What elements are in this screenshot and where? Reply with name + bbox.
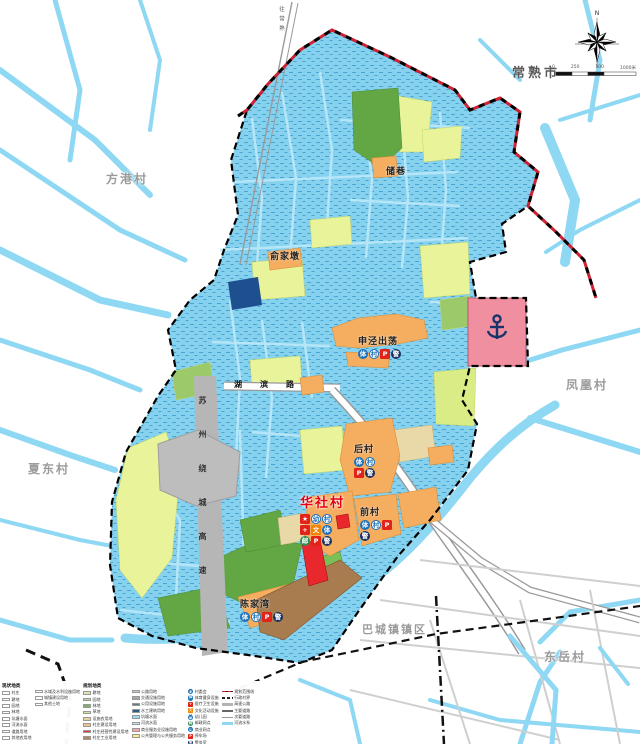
legend-item: 商商业网点 <box>188 727 219 732</box>
legend-item: 水域及水利设施用地 <box>35 689 81 694</box>
legend-item: 其他土地 <box>35 702 81 707</box>
poi-badge: 邮 <box>300 536 310 546</box>
road-label-local: 湖滨路 <box>234 379 312 390</box>
legend-swatch <box>2 704 10 708</box>
legend-item: 商业服务业设施用地 <box>132 727 186 732</box>
road-label-to-changshu: 往常熟 <box>277 6 285 35</box>
legend-current-col: 现状地类 村庄耕地园地林地坑塘水面河流水面道路用地其他农用地 <box>2 683 32 742</box>
poi-badge: 幼 <box>311 514 321 524</box>
hamlet-shenjingchudang: 申泾出荡 体村P警 <box>358 334 401 359</box>
legend-item: 村庄 <box>2 691 32 696</box>
poi-badges: 体村P警 <box>358 349 401 359</box>
legend-swatch <box>83 698 91 702</box>
poi-badge: + <box>300 525 310 535</box>
legend-item: 村庄建设用地 <box>83 723 129 728</box>
poi-badge: 文 <box>311 525 321 535</box>
legend-item: 公用设施用地 <box>132 702 186 707</box>
poi-badge: 村 <box>322 514 332 524</box>
legend-item: 文文化活动设施 <box>188 708 219 713</box>
legend-line-sample <box>222 703 233 706</box>
legend-panel: 现状地类 村庄耕地园地林地坑塘水面河流水面道路用地其他农用地 水域及水利设施用地… <box>0 681 276 744</box>
legend-line-items: 规划范围线行政村界高速公路主要道路次要道路河流水系 <box>222 683 255 742</box>
legend-item: 体体育健身设施 <box>188 695 219 700</box>
poi-badges: 体村P警 <box>354 457 377 478</box>
legend-swatch <box>132 703 140 707</box>
legend-planned-items: 耕地园地林地草地设施农用地村庄建设用地村庄经营性建设用地村庄工业用地 <box>83 691 129 741</box>
hamlet-chenjiawan: 陈家湾 体村P警 <box>240 597 283 622</box>
legend-item: 幼幼儿园 <box>188 715 219 720</box>
legend-item: 河流水面 <box>132 721 186 726</box>
poi-badges: 体村P警 <box>360 520 394 541</box>
legend-facility-icon: 商 <box>188 727 193 732</box>
poi-badge: P <box>262 612 272 622</box>
legend-facility-icon: 幼 <box>188 715 193 720</box>
legend-current-items: 村庄耕地园地林地坑塘水面河流水面道路用地其他农用地 <box>2 691 32 741</box>
poi-badge: 体 <box>358 349 368 359</box>
legend-swatch <box>2 698 10 702</box>
poi-badge: 村 <box>365 457 375 467</box>
legend-item: 行政村界 <box>222 695 255 700</box>
legend-swatch <box>132 709 140 713</box>
main-village-badges: ★幼村+文体邮P警 <box>300 514 335 546</box>
legend-item: 道路用地 <box>2 729 32 734</box>
poi-badge: 体 <box>360 520 370 530</box>
map-canvas: N 常熟市 02505001000米 方港村 夏东村 凤凰村 东岳村 巴城镇镇区… <box>0 0 640 744</box>
scale-tick-labels: 02505001000米 <box>552 65 636 71</box>
legend-swatch <box>2 730 10 734</box>
legend-swatch <box>83 711 91 715</box>
legend-facility-icon: 邮 <box>188 721 193 726</box>
legend-swatch <box>132 696 140 700</box>
legend-item: 公共管理与公共服务用地 <box>132 734 186 739</box>
scale-bar <box>556 72 636 76</box>
legend-facility-icon: 文 <box>188 708 193 713</box>
legend-swatch <box>83 717 91 721</box>
scale-tick: 0 <box>552 65 555 71</box>
legend-item: 林地 <box>2 710 32 715</box>
legend-item: 坑塘水面 <box>2 716 32 721</box>
poi-badge: 村 <box>371 520 381 530</box>
poi-badge: 警 <box>391 349 401 359</box>
legend-facility-icon: 体 <box>188 695 193 700</box>
legend-facility-icon: + <box>188 702 193 707</box>
legend-item: 水工建筑用地 <box>132 708 186 713</box>
legend-line-sample <box>222 697 233 698</box>
legend-item: 坑塘水面 <box>132 715 186 720</box>
legend-swatch <box>2 711 10 715</box>
poi-badge: P <box>380 349 390 359</box>
legend-line-sample <box>222 691 233 693</box>
legend-swatch <box>35 703 43 707</box>
neighbor-label-fenghuang: 凤凰村 <box>566 376 608 393</box>
legend-swatch <box>83 723 91 727</box>
poi-badge: P <box>311 536 321 546</box>
poi-badge: 村 <box>369 349 379 359</box>
legend-item: +医疗卫生设施 <box>188 702 219 707</box>
road-label-expressway: 苏州绕城高速 <box>197 396 208 600</box>
hamlet-houcun: 后村 体村P警 <box>354 442 377 478</box>
poi-badge: 体 <box>240 612 250 622</box>
legend-item: 村庄经营性建设用地 <box>83 729 129 734</box>
legend-swatch <box>83 704 91 708</box>
legend-swatch <box>2 717 10 721</box>
legend-swatch <box>132 690 140 694</box>
legend-item: P停车场 <box>188 734 219 739</box>
legend-item: 邮邮政网点 <box>188 721 219 726</box>
legend-planned-title: 规划地类 <box>83 683 129 689</box>
poi-badge: 体 <box>354 457 364 467</box>
legend-line-sample <box>222 710 233 712</box>
legend-line-sample <box>222 722 233 724</box>
legend-item: 林地 <box>83 703 129 708</box>
legend-item: 耕地 <box>2 697 32 702</box>
utility-block <box>228 277 262 310</box>
poi-badge: P <box>354 468 364 478</box>
legend-item: 设施农用地 <box>83 716 129 721</box>
legend-item: 园地 <box>2 703 32 708</box>
legend-item: 村庄工业用地 <box>83 735 129 740</box>
legend-line-sample <box>222 717 233 718</box>
hamlet-chuxiang: 储巷 <box>386 164 406 177</box>
scale-tick: 500 <box>595 65 604 71</box>
legend-facility-icon: 警 <box>188 740 193 744</box>
legend-swatch <box>132 728 140 732</box>
town-label: 巴城镇镇区 <box>362 621 427 637</box>
poi-badges: 体村P警 <box>240 612 283 622</box>
poi-badge: 警 <box>322 536 332 546</box>
poi-badge: 警 <box>365 468 375 478</box>
legend-swatch <box>2 691 10 695</box>
poi-badge: 警 <box>273 612 283 622</box>
legend-planned-items-2: 公路用地交通设施用地公用设施用地水工建筑用地坑塘水面河流水面商业服务业设施用地公… <box>132 683 186 742</box>
legend-swatch <box>132 722 140 726</box>
scale-tick: 1000米 <box>620 65 636 71</box>
legend-item: 河流水面 <box>2 723 32 728</box>
legend-item: 河流水系 <box>222 721 255 726</box>
legend-swatch <box>83 736 91 740</box>
legend-item: 其他农用地 <box>2 735 32 740</box>
poi-badge: 村 <box>251 612 261 622</box>
legend-item: 公路用地 <box>132 689 186 694</box>
poi-badge: 警 <box>360 531 370 541</box>
legend-swatch <box>83 730 91 734</box>
legend-swatch <box>132 734 140 738</box>
legend-current-title: 现状地类 <box>2 683 32 689</box>
legend-item: 园地 <box>83 697 129 702</box>
port-block <box>468 298 526 366</box>
main-village-huashecun: 华社村 ★幼村+文体邮P警 <box>300 492 345 546</box>
legend-facility-items: 村村委会体体育健身设施+医疗卫生设施文文化活动设施幼幼儿园邮邮政网点商商业网点P… <box>188 683 219 742</box>
legend-item: 高速公路 <box>222 702 255 707</box>
legend-facility-icon: 村 <box>188 689 193 694</box>
legend-item: 村村委会 <box>188 689 219 694</box>
legend-current-items-2: 水域及水利设施用地城镇建设用地其他土地 <box>35 683 81 742</box>
legend-item: 规划范围线 <box>222 689 255 694</box>
neighbor-label-xiadong: 夏东村 <box>28 460 70 477</box>
legend-item: 交通设施用地 <box>132 695 186 700</box>
legend-facility-icon: P <box>188 734 193 739</box>
legend-swatch <box>83 691 91 695</box>
compass-north-label: N <box>595 10 600 17</box>
legend-item: 草地 <box>83 710 129 715</box>
map-drawing: N <box>0 0 640 744</box>
hamlet-qiancun: 前村 体村P警 <box>360 505 394 541</box>
legend-item: 次要道路 <box>222 715 255 720</box>
legend-item: 主要道路 <box>222 708 255 713</box>
main-village-name: 华社村 <box>300 492 345 511</box>
legend-swatch <box>2 723 10 727</box>
poi-badge: P <box>382 520 392 530</box>
legend-item: 警警务室 <box>188 740 219 744</box>
legend-item: 耕地 <box>83 691 129 696</box>
legend-swatch <box>2 736 10 740</box>
hamlet-yujiadun: 俞家墩 <box>270 249 300 262</box>
neighbor-label-fanggang: 方港村 <box>106 170 148 187</box>
legend-item: 城镇建设用地 <box>35 695 81 700</box>
neighbor-label-dongyue: 东岳村 <box>544 648 586 665</box>
legend-swatch <box>132 715 140 719</box>
poi-badge: 体 <box>322 525 332 535</box>
legend-swatch <box>35 690 43 694</box>
scale-tick: 250 <box>571 65 580 71</box>
legend-planned-col: 规划地类 耕地园地林地草地设施农用地村庄建设用地村庄经营性建设用地村庄工业用地 <box>83 683 129 742</box>
legend-swatch <box>35 696 43 700</box>
poi-badge: ★ <box>300 514 310 524</box>
